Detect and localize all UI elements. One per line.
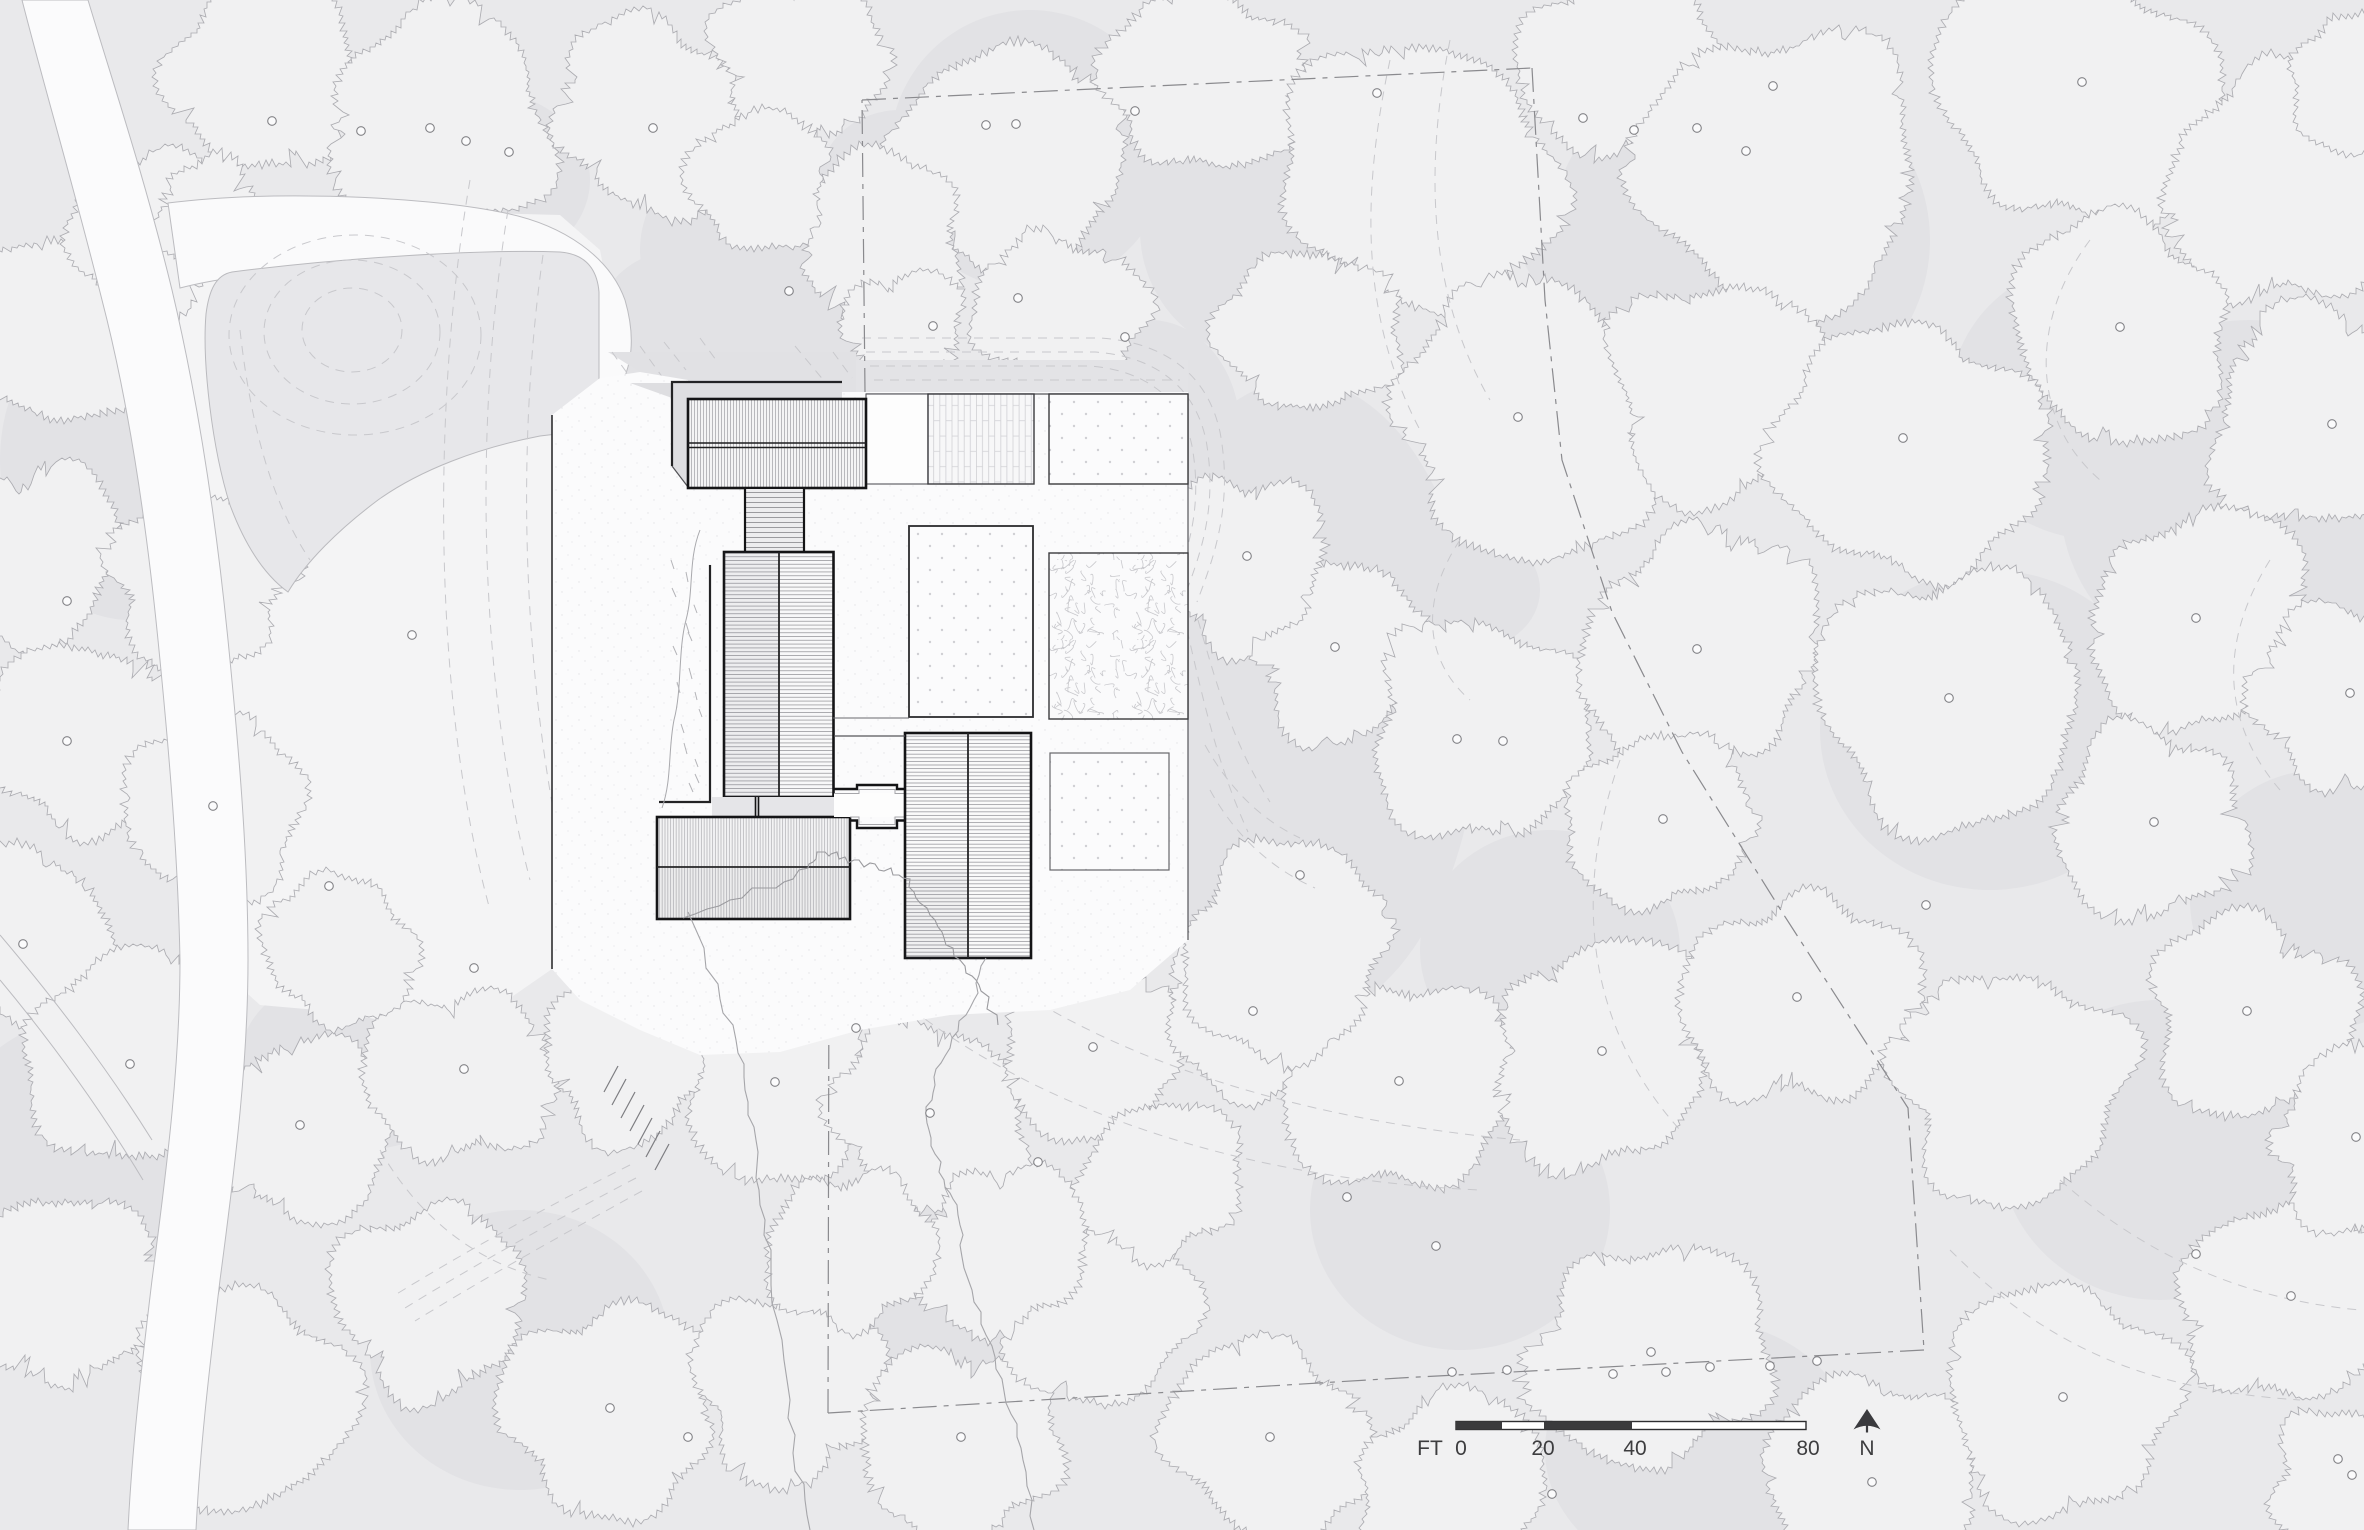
svg-text:N: N bbox=[1859, 1437, 1874, 1460]
svg-text:FT: FT bbox=[1417, 1437, 1443, 1460]
svg-text:80: 80 bbox=[1796, 1437, 1819, 1460]
svg-text:20: 20 bbox=[1531, 1437, 1554, 1460]
svg-text:40: 40 bbox=[1623, 1437, 1646, 1460]
svg-text:0: 0 bbox=[1455, 1437, 1467, 1460]
